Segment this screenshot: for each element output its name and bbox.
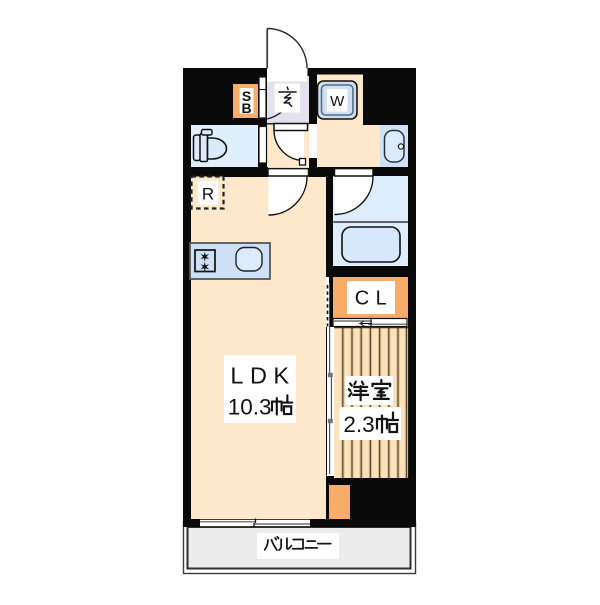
svg-text:W: W (330, 93, 345, 110)
svg-text:10.3: 10.3 (228, 395, 272, 420)
svg-text:B: B (241, 100, 251, 116)
svg-text:LDK: LDK (230, 363, 295, 389)
svg-text:CL: CL (355, 288, 394, 310)
svg-text:2.3: 2.3 (343, 412, 374, 437)
svg-text:R: R (202, 185, 214, 204)
